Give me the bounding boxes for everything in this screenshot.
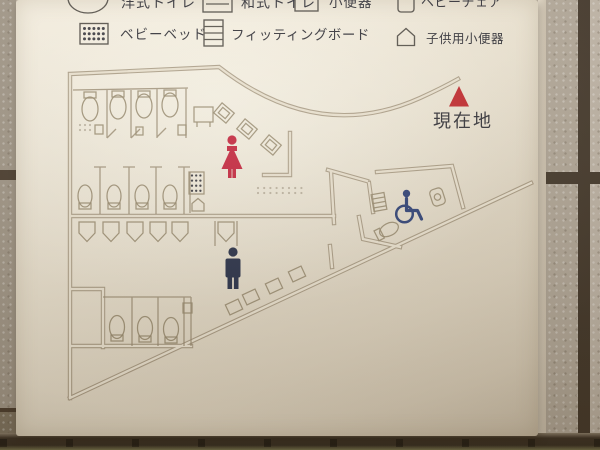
- legend: 洋式トイレ 和式トイレ 小便器 ベビーチェア ベビーベ: [68, 0, 504, 46]
- toilet-fixtures-women-top: [82, 90, 186, 135]
- legend-label: ベビーベッド: [120, 27, 207, 43]
- western-toilet-icon: [68, 0, 108, 13]
- red-triangle-icon: [449, 86, 469, 107]
- toilet-fixtures-men: [110, 303, 193, 343]
- baby-bed-dots: [83, 27, 105, 40]
- woman-pictogram: [222, 135, 243, 178]
- legend-label: フィッティングボード: [231, 28, 370, 44]
- map-child-urinal-icon: [192, 199, 204, 212]
- legend-label: ベビーチェア: [421, 0, 502, 11]
- map-baby-bed-icon: [189, 172, 204, 194]
- current-location-label: 現在地: [433, 111, 493, 132]
- legend-label: 子供用小便器: [426, 31, 504, 46]
- squat-toilet-icon: [203, 0, 232, 12]
- baby-bed-icon: [80, 24, 108, 45]
- child-urinal-icon: [398, 29, 415, 46]
- legend-label: 和式トイレ: [241, 0, 316, 12]
- baby-chair-icon: [398, 0, 414, 12]
- current-location: 現在地: [433, 86, 493, 132]
- photo-of-restroom-map-sign: 洋式トイレ 和式トイレ 小便器 ベビーチェア ベビーベ: [0, 0, 600, 450]
- toilet-fixtures-women-middle: [78, 185, 177, 209]
- sink-counter-women: [194, 103, 281, 155]
- floor-plan: 洋式トイレ 和式トイレ 小便器 ベビーチェア ベビーベ: [0, 0, 600, 450]
- urinal-fixtures: [79, 222, 234, 242]
- man-pictogram: [226, 247, 241, 289]
- legend-label: 小便器: [329, 0, 373, 11]
- legend-label: 洋式トイレ: [121, 0, 196, 12]
- wheelchair-pictogram: [396, 190, 421, 223]
